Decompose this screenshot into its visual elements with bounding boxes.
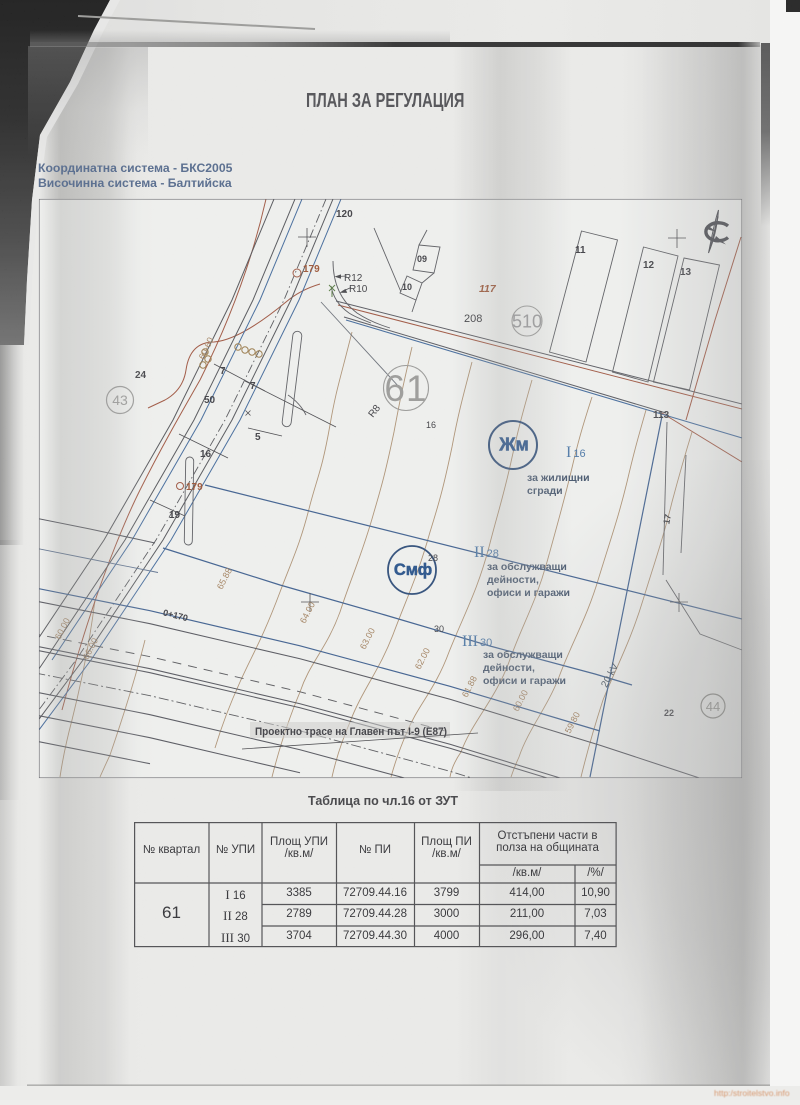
svg-text:R12: R12	[344, 273, 363, 284]
svg-text:30: 30	[434, 624, 444, 634]
svg-text:7: 7	[250, 381, 256, 392]
svg-text:61: 61	[384, 368, 427, 409]
svg-text:16: 16	[200, 449, 212, 460]
svg-text:120: 120	[336, 209, 353, 220]
svg-text:179: 179	[303, 264, 320, 275]
svg-text:5: 5	[255, 432, 261, 443]
svg-text:11: 11	[575, 245, 586, 256]
svg-text:R10: R10	[349, 284, 368, 295]
svg-text:16: 16	[426, 420, 436, 430]
svg-text:09: 09	[417, 254, 427, 264]
svg-text:10: 10	[402, 282, 412, 292]
svg-text:179: 179	[186, 482, 203, 493]
svg-text:7: 7	[220, 366, 226, 377]
svg-text:50: 50	[204, 395, 216, 406]
svg-text:19: 19	[169, 510, 181, 521]
svg-text:Проектно трасе на Главен път I: Проектно трасе на Главен път I-9 (Е87)	[255, 726, 447, 738]
svg-text:Смф: Смф	[394, 561, 432, 579]
svg-text:28: 28	[428, 553, 438, 563]
